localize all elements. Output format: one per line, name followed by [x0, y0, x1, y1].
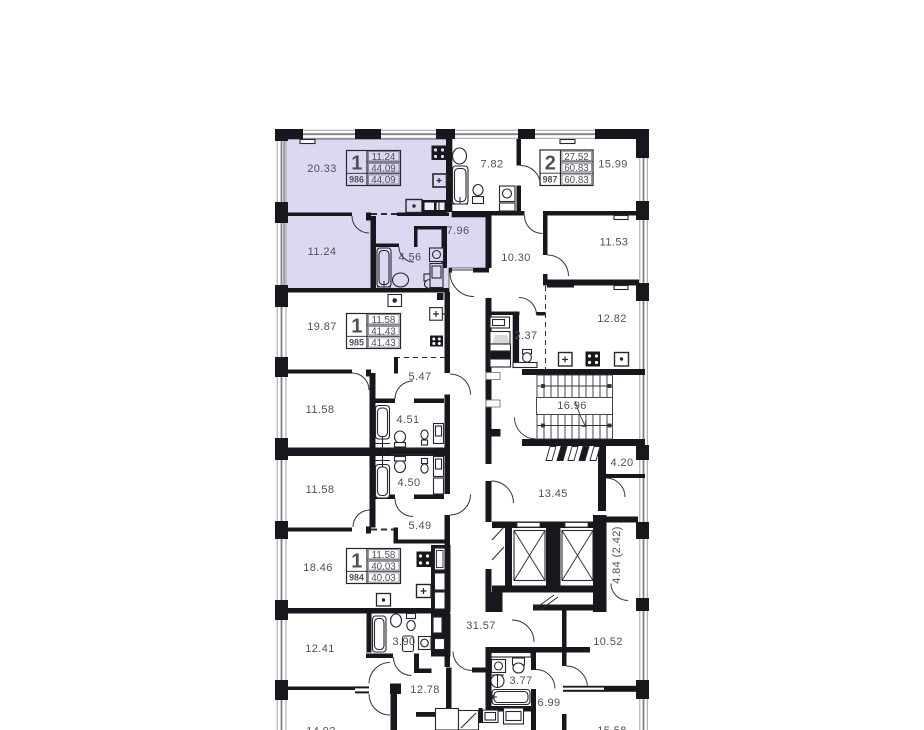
- svg-text:4.56: 4.56: [398, 252, 421, 264]
- svg-text:40.03: 40.03: [371, 561, 396, 572]
- svg-text:10.52: 10.52: [593, 636, 623, 648]
- svg-text:41.43: 41.43: [371, 326, 396, 337]
- svg-text:31.57: 31.57: [466, 620, 496, 632]
- svg-text:7.96: 7.96: [446, 225, 469, 237]
- svg-text:4.51: 4.51: [396, 414, 419, 426]
- svg-text:11.58: 11.58: [306, 404, 335, 416]
- svg-text:16.96: 16.96: [557, 400, 587, 412]
- svg-text:1: 1: [351, 153, 362, 175]
- svg-text:12.82: 12.82: [597, 313, 627, 325]
- svg-text:4.50: 4.50: [397, 477, 420, 489]
- svg-text:987: 987: [543, 174, 558, 184]
- svg-text:13.45: 13.45: [538, 488, 568, 500]
- svg-text:11.24: 11.24: [308, 246, 337, 258]
- svg-text:6.99: 6.99: [537, 697, 560, 709]
- svg-text:11.24: 11.24: [372, 152, 396, 163]
- svg-text:12.78: 12.78: [410, 684, 440, 696]
- svg-text:12.41: 12.41: [305, 643, 335, 655]
- svg-text:11.58: 11.58: [372, 315, 396, 326]
- svg-text:4.84 (2.42): 4.84 (2.42): [611, 526, 623, 584]
- svg-text:11.58: 11.58: [306, 484, 335, 496]
- svg-text:40.03: 40.03: [371, 573, 396, 584]
- svg-text:5.47: 5.47: [408, 371, 431, 383]
- svg-text:19.87: 19.87: [307, 321, 337, 333]
- svg-text:44.09: 44.09: [371, 175, 396, 186]
- svg-text:18.46: 18.46: [303, 562, 333, 574]
- svg-text:15.58: 15.58: [597, 725, 627, 730]
- svg-text:5.49: 5.49: [408, 520, 431, 532]
- svg-text:20.33: 20.33: [307, 163, 337, 175]
- svg-text:985: 985: [349, 338, 364, 348]
- svg-text:27.52: 27.52: [564, 152, 589, 163]
- svg-text:11.58: 11.58: [372, 550, 396, 561]
- svg-text:44.09: 44.09: [371, 163, 396, 174]
- svg-text:15.99: 15.99: [598, 159, 628, 171]
- svg-text:1: 1: [351, 316, 362, 338]
- svg-text:3.90: 3.90: [392, 636, 415, 648]
- svg-text:14.92: 14.92: [306, 726, 336, 730]
- svg-text:7.82: 7.82: [480, 159, 503, 171]
- svg-text:11.53: 11.53: [600, 237, 629, 249]
- svg-text:4.20: 4.20: [610, 457, 633, 469]
- svg-text:986: 986: [349, 175, 364, 185]
- svg-text:41.43: 41.43: [371, 338, 396, 349]
- svg-text:60.83: 60.83: [564, 163, 589, 174]
- svg-text:2.37: 2.37: [514, 330, 537, 342]
- svg-text:60.83: 60.83: [564, 175, 589, 186]
- svg-text:1: 1: [351, 551, 362, 573]
- svg-text:10.30: 10.30: [501, 252, 531, 264]
- svg-text:3.77: 3.77: [509, 675, 532, 687]
- svg-text:984: 984: [349, 573, 364, 583]
- svg-text:2: 2: [545, 152, 556, 174]
